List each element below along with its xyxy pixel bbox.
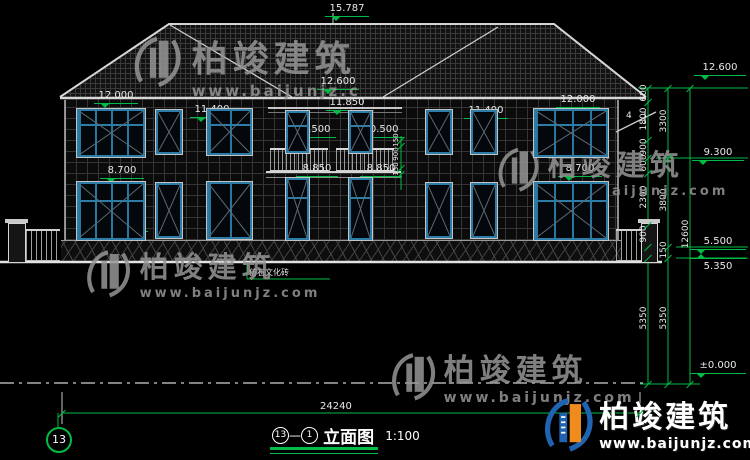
dim-middle-5350: 5350 bbox=[659, 298, 669, 338]
left-fence-post bbox=[8, 223, 26, 263]
window bbox=[77, 182, 145, 240]
title-underline bbox=[270, 447, 378, 454]
window bbox=[471, 110, 497, 154]
level-5500-datum: 5.500 bbox=[690, 236, 746, 250]
window bbox=[286, 111, 309, 153]
window bbox=[349, 111, 372, 153]
sheet-number-bubble: 13 bbox=[46, 427, 72, 453]
watermark-top: 柏竣建筑 www.baijunjz.c bbox=[128, 30, 361, 100]
window-glazing-diagonals bbox=[79, 111, 143, 155]
window bbox=[534, 182, 608, 240]
brand-logo-icon bbox=[128, 30, 186, 92]
window bbox=[471, 183, 497, 238]
brand-text: 柏竣建筑 bbox=[599, 400, 731, 435]
level-12600-datum: 12.600 bbox=[694, 62, 746, 76]
window-glazing-diagonals bbox=[428, 185, 450, 236]
watermark-bottom-left: 柏竣建筑 www.baijunjz.com bbox=[82, 244, 320, 302]
brand-text: 柏竣建筑 bbox=[192, 39, 356, 80]
level-ridge: 15.787 bbox=[325, 3, 369, 17]
window bbox=[426, 110, 452, 154]
dim-inner-5350: 5350 bbox=[639, 298, 649, 338]
level-5350-datum: 5.350 bbox=[690, 258, 746, 272]
window-glazing-diagonals bbox=[158, 185, 180, 236]
brand-text: 柏竣建筑 bbox=[444, 353, 588, 389]
window bbox=[207, 182, 252, 239]
window-glazing-diagonals bbox=[288, 180, 307, 238]
watermark-right: 柏竣建筑 www.baijunjz.com bbox=[494, 142, 728, 199]
level-8700-left: 8.700 bbox=[100, 165, 144, 179]
right-fence-balusters bbox=[616, 229, 641, 261]
window-glazing-diagonals bbox=[209, 111, 250, 153]
window bbox=[77, 109, 145, 157]
window bbox=[207, 109, 252, 155]
window bbox=[156, 183, 182, 238]
window bbox=[286, 178, 309, 240]
window-glazing-diagonals bbox=[79, 184, 143, 238]
window-glazing-diagonals bbox=[209, 184, 250, 237]
level-8850-left-balcony: 8.850 bbox=[296, 163, 338, 177]
window bbox=[534, 109, 608, 157]
window-glazing-diagonals bbox=[536, 184, 606, 238]
window bbox=[426, 183, 452, 238]
roof-slope-value: 4 bbox=[626, 111, 632, 121]
window bbox=[349, 178, 372, 240]
window-glazing-diagonals bbox=[288, 113, 307, 151]
window-glazing-diagonals bbox=[351, 113, 370, 151]
dim-middle-3300: 3300 bbox=[659, 101, 669, 141]
window-glazing-diagonals bbox=[158, 112, 180, 152]
window bbox=[156, 110, 182, 154]
title-scale: 1:100 bbox=[385, 429, 420, 443]
overall-width-dimension: 24240 bbox=[320, 401, 352, 412]
brand-logo-color: 柏竣建筑 www.baijunjz.com bbox=[542, 392, 750, 456]
brand-text: 柏竣建筑 bbox=[140, 250, 276, 284]
title-name: 立面图 bbox=[323, 428, 374, 448]
title-dash: — bbox=[289, 429, 301, 443]
brand-url: www.baijunjz.c bbox=[192, 82, 361, 100]
window-glazing-diagonals bbox=[473, 112, 495, 152]
window-glazing-diagonals bbox=[428, 112, 450, 152]
brand-logo-color-icon bbox=[542, 392, 594, 456]
drawing-title: 13—1 立面图 1:100 bbox=[272, 423, 420, 448]
dim-outer-12600: 12600 bbox=[681, 214, 691, 254]
brand-url: www.baijunjz.com bbox=[140, 286, 321, 301]
brand-url: www.baijunjz.com bbox=[599, 436, 750, 452]
window-glazing-diagonals bbox=[351, 180, 370, 238]
brand-logo-icon bbox=[82, 244, 134, 302]
window-glazing-diagonals bbox=[536, 111, 606, 155]
title-to-bubble: 1 bbox=[301, 427, 318, 444]
title-from-bubble: 13 bbox=[272, 427, 289, 444]
window-glazing-diagonals bbox=[473, 185, 495, 236]
level-0000-datum: ±0.000 bbox=[690, 360, 746, 374]
level-12000-right: 12.000 bbox=[556, 94, 600, 108]
elevation-drawing-canvas: 15.787 12.600 11.850 12.000 11.400 10.25… bbox=[0, 0, 750, 460]
brand-logo-icon bbox=[388, 345, 438, 407]
roof-slope-symbol bbox=[616, 112, 656, 132]
left-fence-balusters bbox=[26, 229, 60, 261]
